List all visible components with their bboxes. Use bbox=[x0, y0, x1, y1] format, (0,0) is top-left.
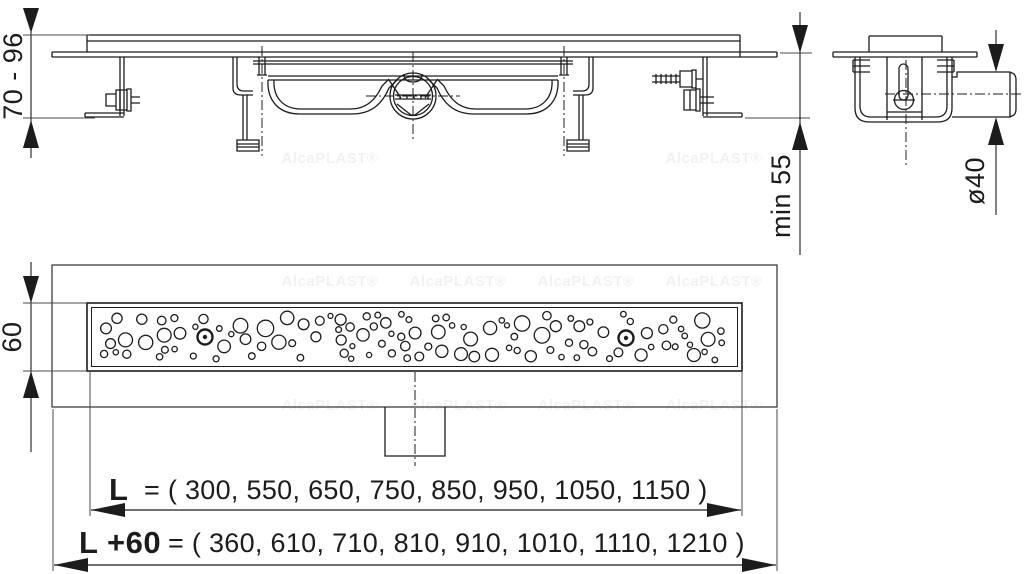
grate-bubble-hole bbox=[719, 340, 725, 346]
grate-bubble-hole bbox=[659, 325, 668, 334]
grate-bubble-hole bbox=[389, 331, 394, 336]
dim-installation-height: 70 - 96 bbox=[0, 8, 812, 158]
front-elevation-view bbox=[52, 35, 777, 156]
grate-bubble-hole bbox=[543, 312, 551, 320]
left-bracket-bolt bbox=[106, 89, 140, 111]
watermark-text: AlcaPLAST® bbox=[538, 397, 635, 414]
grate-bubble-hole bbox=[682, 333, 688, 339]
grate-bubble-hole bbox=[174, 328, 186, 340]
watermark-text: AlcaPLAST® bbox=[666, 397, 763, 414]
grate-bubble-hole bbox=[670, 316, 677, 323]
grate-bubble-hole bbox=[461, 324, 466, 329]
grate-bubble-hole bbox=[106, 339, 116, 349]
grate-bubble-hole bbox=[123, 350, 131, 358]
grate-bubble-hole bbox=[370, 323, 377, 330]
grate-bubble-hole bbox=[297, 354, 304, 361]
left-bracket-plate bbox=[85, 57, 124, 117]
grate-bubble-hole bbox=[399, 312, 405, 318]
grate-bubble-hole bbox=[101, 323, 112, 334]
grate-bubble-hole bbox=[712, 357, 718, 363]
grate-bubble-hole bbox=[172, 346, 177, 351]
grate-bubble-hole bbox=[455, 348, 468, 361]
grate-bubble-hole bbox=[113, 350, 118, 355]
grate-bubble-hole bbox=[565, 339, 572, 346]
bubble-grate-pattern bbox=[101, 311, 725, 363]
grate-bubble-hole bbox=[607, 356, 613, 362]
grate-bubble-hole bbox=[388, 350, 395, 357]
grate-bubble-hole bbox=[162, 346, 169, 353]
drain-channel-drawing: AlcaPLAST®AlcaPLAST®AlcaPLAST®AlcaPLAST®… bbox=[0, 0, 1024, 574]
grate-bubble-hole bbox=[627, 318, 633, 324]
grate-bubble-hole bbox=[363, 313, 370, 320]
grate-bubble-hole bbox=[357, 329, 369, 341]
right-bracket-bolt bbox=[684, 89, 714, 111]
grate-bubble-hole bbox=[587, 319, 593, 325]
grate-bubble-hole bbox=[614, 348, 623, 357]
floor-plate bbox=[52, 35, 777, 57]
grate-bubble-hole bbox=[379, 340, 386, 347]
plan-view bbox=[52, 265, 777, 466]
section-screw bbox=[893, 91, 915, 110]
grate-bubble-hole bbox=[588, 347, 597, 356]
watermark-text: AlcaPLAST® bbox=[538, 273, 635, 290]
min-depth-label: min 55 bbox=[766, 154, 796, 238]
grate-bubble-hole bbox=[621, 311, 627, 317]
grate-bubble-hole bbox=[257, 342, 265, 350]
section-clamps bbox=[853, 60, 954, 72]
grate-bubble-hole bbox=[328, 313, 333, 318]
grate-bubble-hole bbox=[217, 326, 223, 332]
grate-bubble-hole bbox=[249, 353, 256, 360]
grate-bubble-hole bbox=[336, 327, 342, 333]
grate-bubble-hole bbox=[350, 344, 355, 349]
right-end-cap bbox=[567, 57, 593, 151]
section-column bbox=[887, 57, 922, 120]
grate-bubble-hole bbox=[574, 321, 585, 332]
grate-fixing-screw-center bbox=[203, 335, 207, 339]
left-tub bbox=[268, 79, 398, 114]
left-end-cap bbox=[233, 57, 259, 151]
watermark-layer: AlcaPLAST®AlcaPLAST®AlcaPLAST®AlcaPLAST®… bbox=[282, 150, 763, 414]
pipe-diameter-label: ø40 bbox=[960, 157, 990, 205]
grate-bubble-hole bbox=[157, 316, 166, 325]
right-bracket-plate bbox=[703, 57, 742, 117]
grate-bubble-hole bbox=[514, 347, 520, 353]
grate-bubble-hole bbox=[240, 334, 251, 345]
grate-bubble-hole bbox=[401, 341, 410, 350]
grate-bubble-hole bbox=[432, 315, 439, 322]
grate-bubble-hole bbox=[702, 349, 707, 354]
grate-bubble-hole bbox=[695, 313, 710, 328]
grate-bubble-hole bbox=[649, 344, 654, 349]
grate-bubble-hole bbox=[550, 321, 561, 332]
dim-length-L: L = ( 300, 550, 650, 750, 850, 950, 1050… bbox=[90, 372, 742, 517]
channel-width-label: 60 bbox=[0, 321, 27, 352]
watermark-text: AlcaPLAST® bbox=[666, 273, 763, 290]
installation-height-label: 70 - 96 bbox=[0, 32, 28, 120]
grate-bubble-hole bbox=[119, 333, 133, 347]
grate-bubble-hole bbox=[505, 323, 510, 328]
grate-bubble-hole bbox=[311, 332, 321, 342]
grate-bubble-hole bbox=[101, 350, 108, 357]
watermark-text: AlcaPLAST® bbox=[282, 273, 379, 290]
grate-bubble-hole bbox=[298, 319, 309, 330]
grate-bubble-hole bbox=[534, 328, 550, 344]
grate-bubble-hole bbox=[687, 342, 692, 347]
grate-bubble-hole bbox=[349, 356, 354, 361]
grate-bubble-hole bbox=[199, 314, 208, 323]
technical-drawing-canvas: AlcaPLAST®AlcaPLAST®AlcaPLAST®AlcaPLAST®… bbox=[0, 0, 1024, 574]
grate-bubble-hole bbox=[486, 348, 499, 361]
grate-bubble-hole bbox=[139, 335, 153, 349]
grate-bubble-hole bbox=[687, 349, 700, 362]
grate-bubble-hole bbox=[499, 318, 504, 323]
grate-bubble-hole bbox=[340, 349, 348, 357]
grate-bubble-hole bbox=[449, 323, 454, 328]
grate-bubble-hole bbox=[672, 344, 678, 350]
dim-channel-width: 60 bbox=[0, 262, 87, 452]
grate-bubble-hole bbox=[432, 325, 446, 339]
grate-bubble-hole bbox=[137, 314, 147, 324]
grate-bubble-hole bbox=[506, 345, 511, 350]
watermark-text: AlcaPLAST® bbox=[410, 273, 507, 290]
length-L-values: = ( 300, 550, 650, 750, 850, 950, 1050, … bbox=[144, 475, 708, 505]
side-view-centerlines bbox=[262, 46, 564, 156]
grate-bubble-hole bbox=[213, 356, 219, 362]
grate-bubble-hole bbox=[190, 353, 196, 359]
grate-bubble-hole bbox=[281, 311, 294, 324]
grate-bubble-hole bbox=[464, 332, 478, 346]
grate-bubble-hole bbox=[193, 324, 198, 329]
grate-bubble-hole bbox=[272, 335, 286, 349]
grate-bubble-hole bbox=[398, 333, 405, 340]
grate-bubble-hole bbox=[406, 317, 412, 323]
grate-bubble-hole bbox=[335, 314, 346, 325]
grate-bubble-hole bbox=[678, 326, 683, 331]
section-centerlines bbox=[885, 60, 1022, 168]
grate-bubble-hole bbox=[171, 315, 178, 322]
grate-bubble-hole bbox=[157, 328, 171, 342]
grate-bubble-hole bbox=[381, 318, 391, 328]
dim-min-depth: min 55 bbox=[766, 12, 808, 255]
grate-bubble-hole bbox=[404, 355, 411, 362]
grate-bubble-hole bbox=[156, 354, 162, 360]
grate-bubble-hole bbox=[346, 323, 354, 331]
grate-bubble-hole bbox=[229, 332, 234, 337]
grate-bubble-hole bbox=[514, 316, 529, 331]
grate-bubble-hole bbox=[718, 328, 724, 334]
grate-bubble-hole bbox=[436, 345, 448, 357]
grate-bubble-hole bbox=[112, 313, 122, 323]
right-wall-bracket bbox=[652, 57, 742, 117]
grate-bubble-hole bbox=[511, 333, 518, 340]
grate-bubble-hole bbox=[559, 354, 564, 359]
grate-bubble-hole bbox=[574, 355, 580, 361]
grate-bubble-hole bbox=[409, 327, 421, 339]
grate-bubble-hole bbox=[568, 316, 574, 322]
grate-bubble-hole bbox=[233, 318, 248, 333]
grate-bubble-hole bbox=[598, 327, 609, 338]
grate-bubble-hole bbox=[701, 332, 715, 346]
watermark-text: AlcaPLAST® bbox=[282, 150, 379, 167]
grate-bubble-hole bbox=[367, 352, 372, 357]
section-flange bbox=[833, 36, 977, 57]
grate-bubble-hole bbox=[662, 341, 671, 350]
grate-bubble-hole bbox=[289, 340, 296, 347]
left-wall-bracket bbox=[85, 57, 140, 117]
right-adjust-screw bbox=[652, 70, 703, 88]
length-L60-values: = ( 360, 610, 710, 810, 910, 1010, 1110,… bbox=[168, 528, 745, 558]
grate-bubble-hole bbox=[336, 335, 346, 345]
grate-bubble-hole bbox=[218, 340, 231, 353]
ext-lines bbox=[23, 303, 87, 371]
grate-bubble-hole bbox=[375, 312, 381, 318]
length-L60-symbol: L +60 bbox=[79, 525, 161, 560]
length-L-symbol: L bbox=[109, 472, 128, 507]
grate-bubble-hole bbox=[315, 316, 324, 325]
watermark-text: AlcaPLAST® bbox=[410, 397, 507, 414]
grate-bubble-hole bbox=[425, 343, 432, 350]
grate-bubble-hole bbox=[641, 328, 652, 339]
dimension-lines: 70 - 96 min 55 ø40 60 L = ( 300, 550 bbox=[0, 8, 1004, 572]
grate-bubble-hole bbox=[547, 347, 554, 354]
watermark-text: AlcaPLAST® bbox=[282, 397, 379, 414]
grate-bubble-hole bbox=[257, 320, 273, 336]
dim-pipe-diameter: ø40 bbox=[960, 30, 1004, 215]
watermark-text: AlcaPLAST® bbox=[666, 150, 763, 167]
grate-bubble-hole bbox=[635, 349, 647, 361]
section-slot bbox=[899, 64, 908, 100]
grate-bubble-hole bbox=[580, 341, 588, 349]
grate-bubble-hole bbox=[415, 352, 424, 361]
grate-bubble-hole bbox=[443, 314, 450, 321]
grate-bubble-hole bbox=[525, 351, 536, 362]
grate-bubble-hole bbox=[469, 351, 480, 362]
grate-fixing-screw-center bbox=[624, 336, 628, 340]
grate-bubble-hole bbox=[484, 321, 497, 334]
